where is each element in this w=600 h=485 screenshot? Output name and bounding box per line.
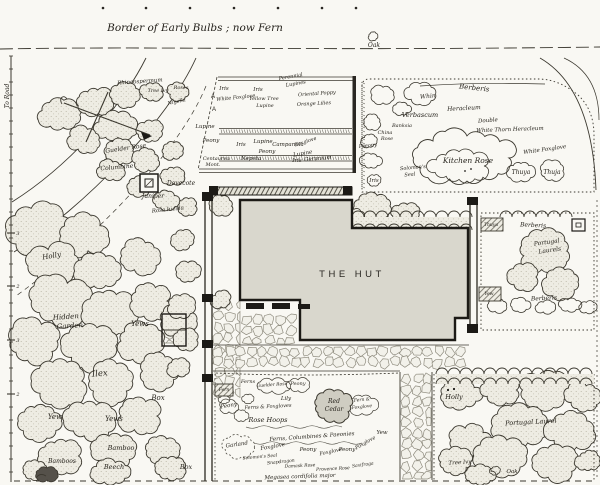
plant-label: Rose (380, 136, 393, 142)
plant-label: Banksia (391, 123, 412, 129)
plant-label: Box (150, 394, 164, 402)
plant-label: Thuya (512, 169, 531, 176)
plant-label: Thuja (543, 169, 561, 176)
plant-label: Bamboo (107, 444, 135, 452)
plant-label: Iris (291, 158, 302, 164)
plant-label: Yew (48, 413, 62, 421)
plant-label: Yews (131, 320, 149, 328)
plant-label: Iris (368, 178, 379, 184)
plant-label: Box (179, 463, 193, 471)
plant-label: Yew (376, 430, 387, 436)
plant-label: Lily (280, 396, 292, 402)
plant-label: Berberis (519, 221, 546, 229)
plant-label: Bamboos (47, 458, 76, 465)
plant-label: Ilex (90, 368, 108, 379)
plant-label: Fern (218, 387, 230, 393)
plant-label: Whin (420, 92, 436, 100)
to-road-label: To Road (4, 84, 11, 109)
plant-label: Roses (173, 85, 189, 91)
red-cedar-label: Cedar (325, 406, 345, 413)
garden-plan-page: 3232 OakRhincospermumTree IvyRosesGuelde… (0, 0, 600, 485)
scale-tick-label: 2 (15, 392, 19, 398)
kitchen-rose-label: Kitchen Rose (442, 156, 494, 165)
plant-label: Nepeta (240, 156, 261, 162)
plant-label: Seal (404, 172, 416, 179)
plant-label: Berberis (530, 294, 557, 302)
plant-label: Beech (103, 463, 124, 471)
plant-label: Yellow Tree (249, 96, 279, 102)
plant-label: A (212, 107, 216, 113)
plan-title: Border of Early Bulbs ; now Fern (106, 22, 283, 34)
plant-label: Iris (252, 87, 263, 93)
plant-label: Rose Hoops (247, 416, 288, 424)
oak-top-label: Oak (368, 42, 380, 49)
plant-label: Thuya (484, 222, 498, 228)
oak-bottom-label: Oak (506, 469, 518, 475)
plant-label: Mont. (205, 162, 221, 168)
plant-label: A (211, 94, 215, 100)
plant-label: Peony (258, 149, 277, 155)
plant-label: Lupine (255, 103, 274, 109)
plant-label: Yews (105, 415, 123, 423)
plant-label: Peony (338, 447, 357, 453)
plant-label: Tree Ivy (148, 88, 169, 94)
plant-label: Ferns (240, 379, 256, 385)
plant-label: Peony (299, 447, 318, 453)
dovecote-label: Dovecote (166, 180, 196, 187)
plant-label: Peony (202, 138, 221, 144)
plant-label: Holly (444, 393, 463, 401)
red-cedar-label: Red (327, 398, 340, 405)
plant-label: Yew (484, 291, 493, 297)
plant-label: Peony (289, 381, 305, 387)
scale-tick-label: 3 (16, 231, 19, 237)
plant-label: Verbascum (402, 111, 438, 119)
plant-label: Juniper (140, 193, 165, 200)
plant-label: Iris (235, 142, 246, 148)
plant-label: Iris (218, 86, 229, 92)
garden-plan-drawing: 3232 OakRhincospermumTree IvyRosesGuelde… (0, 0, 600, 485)
plant-label: Lupine (194, 124, 215, 130)
plant-label: Lupine (252, 139, 273, 145)
hut-label: THE HUT (319, 269, 385, 280)
scale-tick-label: 2 (15, 284, 19, 290)
scale-tick-label: 3 (16, 338, 19, 344)
